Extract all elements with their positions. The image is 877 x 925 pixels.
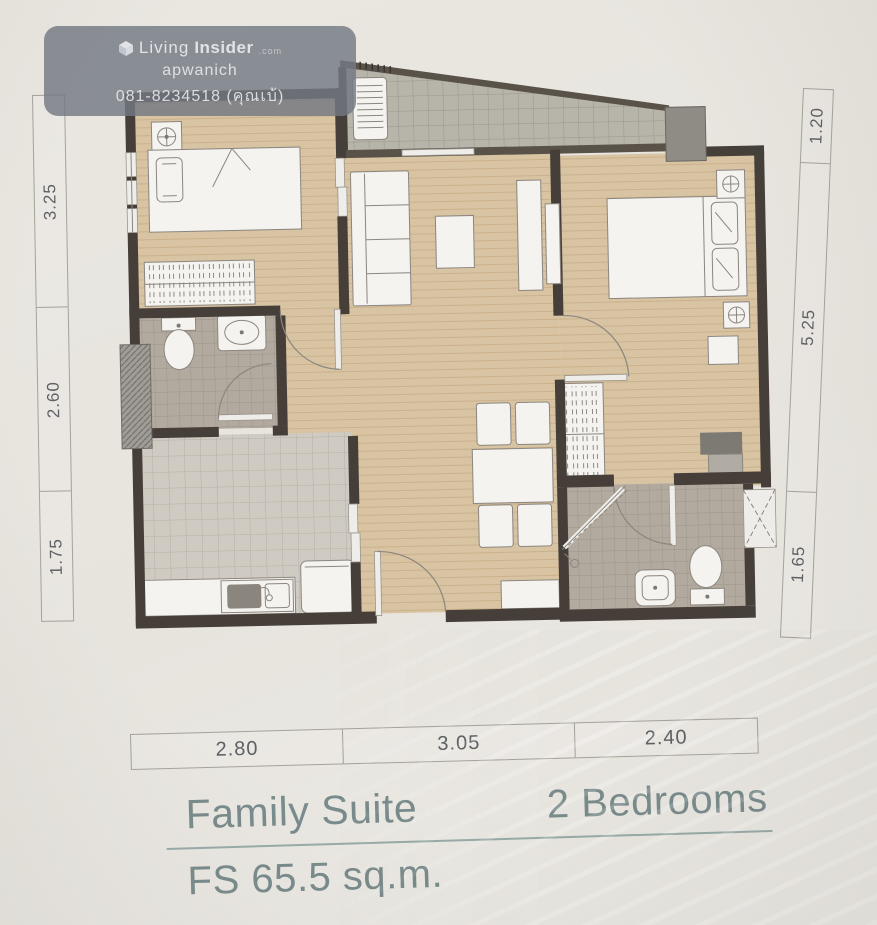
dimension-segment: 2.60	[37, 308, 71, 493]
phone-number: 081-8234518 (คุณเบ้)	[44, 84, 356, 109]
dimension-segment: 2.40	[575, 719, 758, 758]
bed-icon	[607, 196, 747, 299]
ac-fan-icon	[716, 170, 745, 199]
bedrooms-label: 2 Bedrooms	[546, 776, 768, 828]
dimension-label: 1.75	[46, 538, 67, 575]
dimension-segment: 3.25	[33, 95, 68, 308]
fridge-icon	[301, 560, 356, 613]
brand-bold: Insider	[194, 38, 253, 58]
tv-cabinet-icon	[517, 180, 543, 290]
ac-fan-icon	[151, 122, 182, 153]
dimension-label: 3.05	[437, 731, 481, 755]
sink-icon	[217, 314, 266, 351]
brand-text: LivingInsider.com	[44, 38, 356, 58]
coffee-table-icon	[435, 215, 474, 268]
shaft-icon	[120, 344, 152, 449]
chair-icon	[478, 505, 513, 548]
dimension-segment: 3.05	[343, 723, 575, 763]
ac-fan-icon	[723, 302, 750, 329]
bed-icon	[148, 147, 302, 232]
dimension-label: 2.80	[215, 737, 259, 761]
shoe-cabinet-icon	[501, 580, 560, 609]
agent-name: apwanich	[44, 62, 356, 80]
sink-icon	[635, 569, 676, 606]
dimension-segment: 1.75	[40, 492, 73, 621]
dresser-icon	[144, 260, 255, 306]
kitchen-sink-icon	[221, 579, 294, 613]
chair-icon	[517, 504, 552, 547]
dimension-segment: 5.25	[787, 163, 830, 493]
title-block: Family Suite 2 Bedrooms FS 65.5 sq.m.	[165, 774, 774, 905]
dimension-label: 2.40	[644, 726, 688, 750]
floor-plan	[112, 43, 784, 641]
dimension-bar-left: 3.25 2.60 1.75	[32, 94, 74, 621]
hall-floor	[275, 306, 358, 438]
window-icon	[743, 489, 776, 548]
chair-icon	[515, 402, 550, 445]
dimension-segment: 2.80	[131, 729, 344, 769]
unit-area-label: FS 65.5 sq.m.	[167, 842, 774, 905]
unit-type-title: Family Suite	[185, 785, 418, 839]
dimension-label: 1.20	[806, 107, 828, 145]
living-insider-logo-icon	[118, 40, 134, 56]
nightstand-icon	[708, 336, 739, 365]
dimension-bar-right: 1.20 5.25 1.65	[780, 88, 834, 639]
pillar-icon	[700, 432, 742, 455]
dimension-segment: 1.65	[781, 491, 816, 638]
brand-suffix: .com	[259, 46, 283, 56]
dimension-label: 3.25	[40, 183, 61, 220]
dimension-label: 5.25	[798, 308, 820, 346]
dimension-label: 1.65	[788, 546, 810, 584]
dimension-bar-bottom: 2.80 3.05 2.40	[130, 718, 759, 770]
dimension-label: 2.60	[43, 381, 64, 418]
watermark: LivingInsider.com apwanich 081-8234518 (…	[44, 26, 356, 116]
ac-condenser-icon	[352, 77, 387, 140]
dimension-segment: 1.20	[801, 89, 833, 164]
window-icon	[126, 152, 138, 232]
brand-prefix: Living	[139, 38, 189, 58]
sofa-icon	[350, 171, 411, 306]
pillar-icon	[665, 107, 706, 162]
tv-icon	[545, 204, 561, 284]
chair-icon	[476, 403, 511, 446]
brochure-page: 3.25 2.60 1.75 1.20 5.25 1.65 2.80 3.05 …	[0, 0, 877, 925]
sliding-door-icon	[402, 148, 474, 156]
